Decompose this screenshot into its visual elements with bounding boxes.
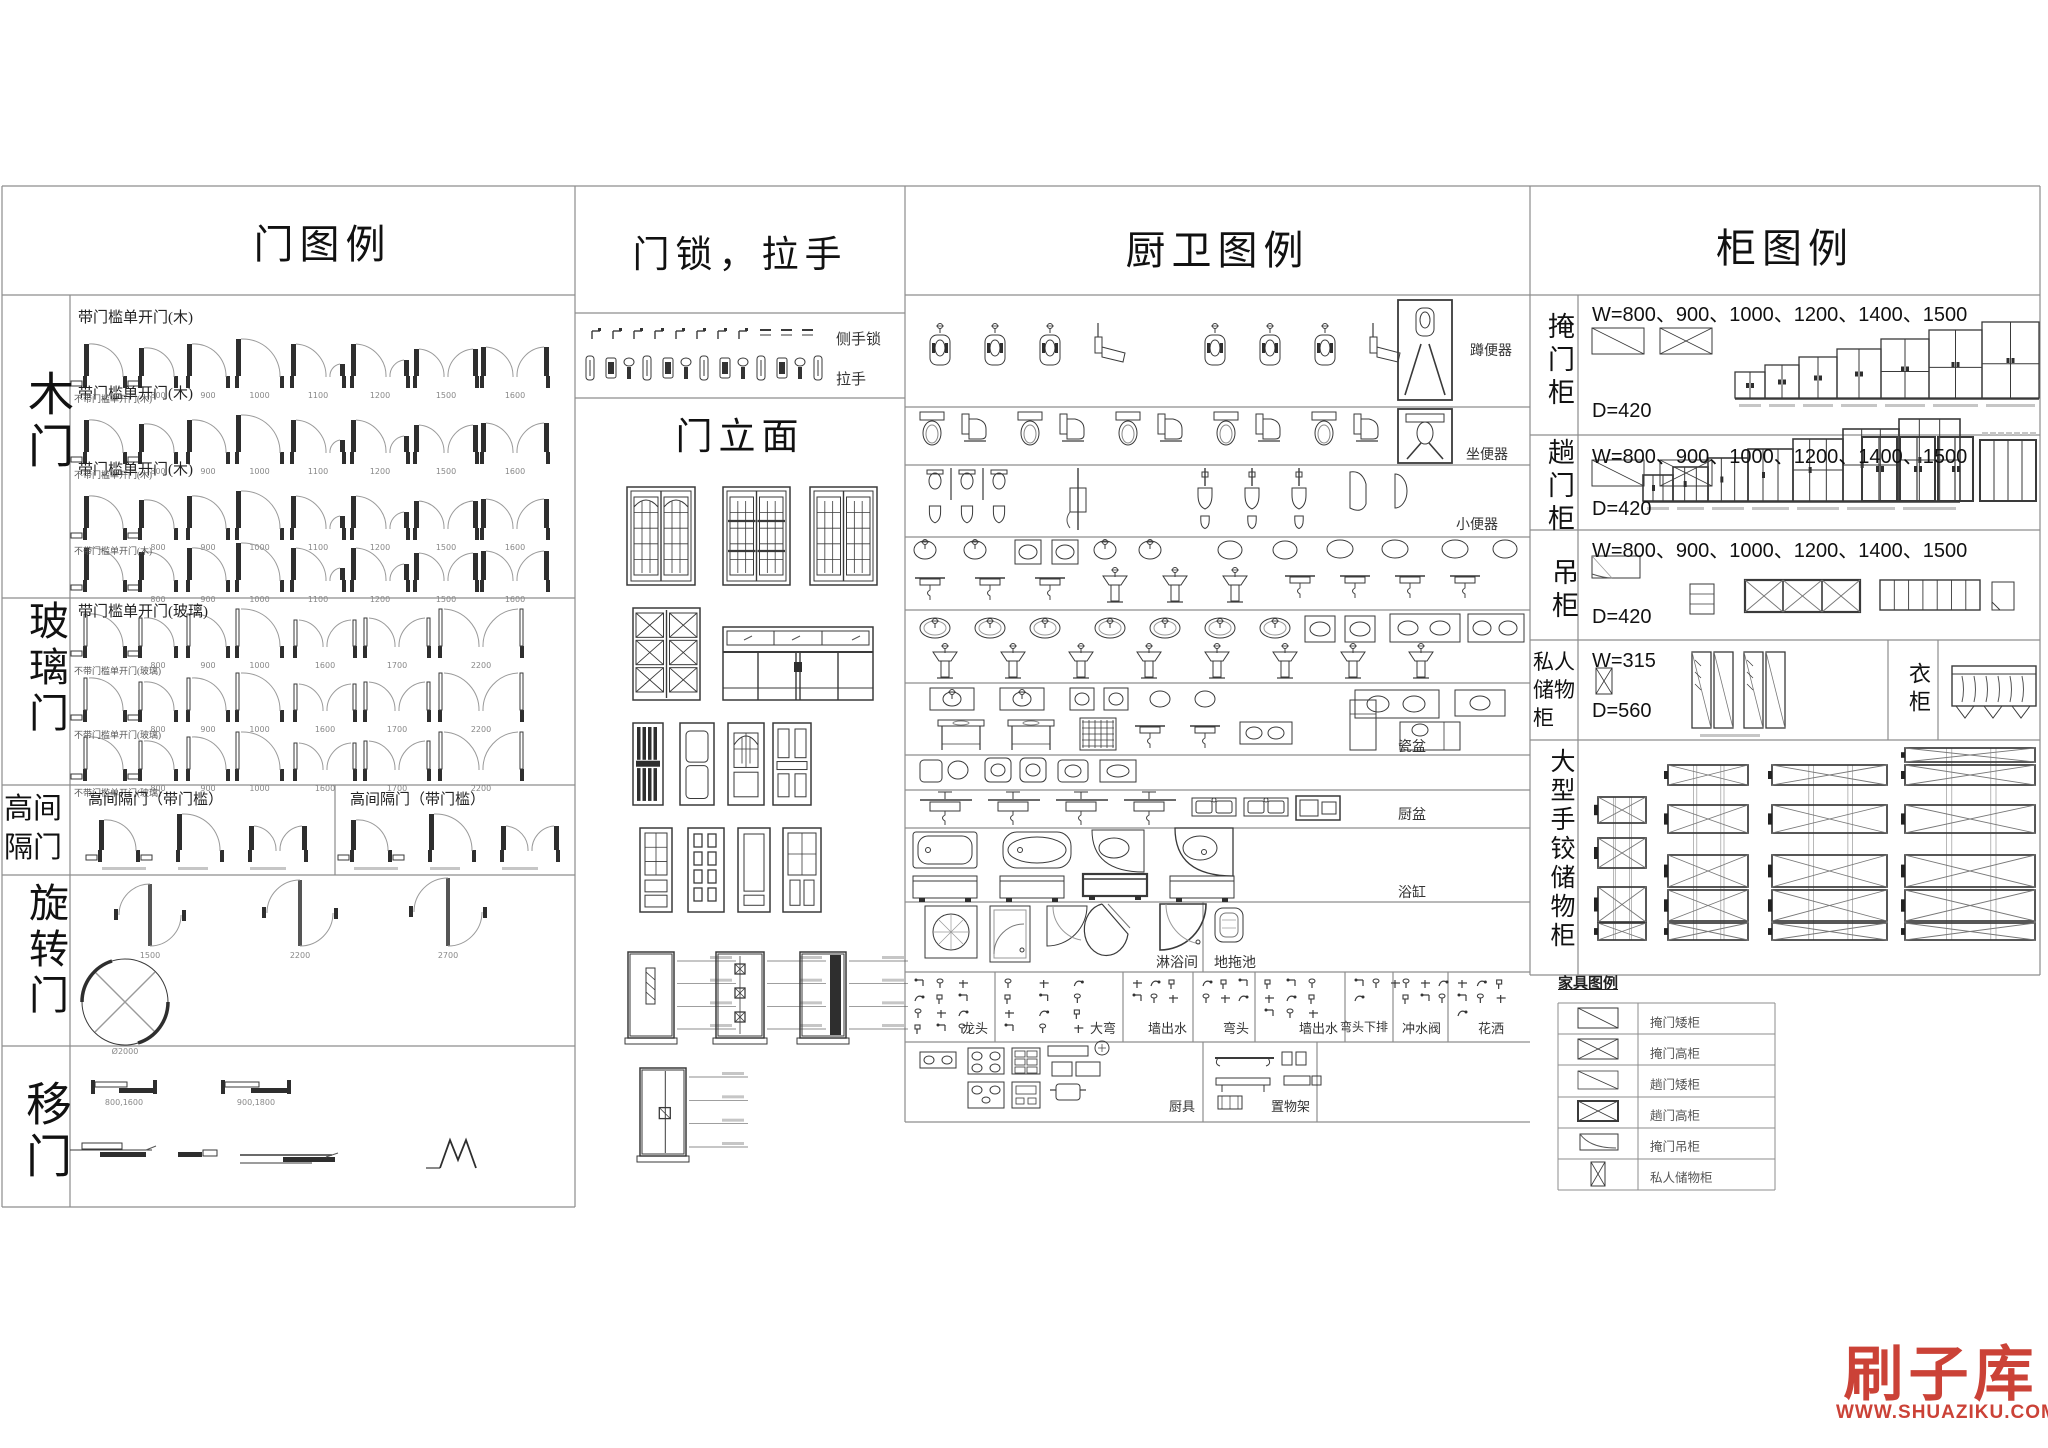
svg-text:900: 900 [200,661,215,670]
section-label-sliding-door: 移门 [12,1080,78,1184]
row-subcaption: 不带门槛单开门(木) [74,392,152,405]
row-subcaption: 不带门槛单开门(玻璃) [74,664,161,677]
kb-cell-label-kitchenware: 厨具 [1095,1096,1195,1115]
furniture-item: 掩门高柜 [1650,1043,1700,1062]
cab-label-wardrobe: 衣柜 [1902,662,1934,718]
kb-cell-label-elbow: 弯头 [1149,1018,1249,1037]
cab-label-hinged: 掩门柜 [1540,312,1579,411]
cad-legend-sheet: 8009001000110012001500160080090010001100… [0,0,2048,1448]
svg-text:1200: 1200 [370,595,390,604]
svg-text:1700: 1700 [387,661,407,670]
svg-text:1100: 1100 [308,543,328,552]
svg-text:1700: 1700 [387,725,407,734]
svg-text:1500: 1500 [436,467,456,476]
cab-w-spec: W=800、900、1000、1200、1400、1500 [1592,534,1967,563]
lock-label: 侧手锁 [836,328,881,349]
row-subcaption: 不带门槛单开门(木) [74,468,152,481]
section-label-revolving-door: 旋转门 [16,882,74,1020]
svg-text:800,1600: 800,1600 [105,1098,143,1107]
door-elevation-title: 门立面 [575,406,905,460]
svg-text:1000: 1000 [249,661,269,670]
kb-cell-label-shower-head: 花洒 [1404,1018,1504,1037]
svg-text:1200: 1200 [370,467,390,476]
svg-text:1000: 1000 [249,467,269,476]
svg-text:900: 900 [200,725,215,734]
svg-text:1100: 1100 [308,595,328,604]
cab-w-spec: W=800、900、1000、1200、1400、1500 [1592,298,1967,327]
svg-text:2200: 2200 [290,951,310,960]
kb-label-mop-pool: 地拖池 [1214,952,1256,972]
kb-label-basin: 瓷盆 [1326,736,1426,756]
row-subcaption: 不带门槛单开门(玻璃) [74,728,161,741]
svg-text:Ø2000: Ø2000 [112,1046,139,1056]
row-caption: 高间隔门（带门槛） [88,788,223,809]
kb-cell-label-faucet: 龙头 [888,1018,988,1037]
furniture-item: 掩门吊柜 [1650,1136,1700,1155]
row-caption: 带门槛单开门(玻璃) [78,600,208,621]
row-caption: 带门槛单开门(木) [78,306,193,327]
svg-text:800: 800 [150,543,165,552]
kitchen-bath-title: 厨卫图例 [905,218,1530,276]
section-label-wood-door: 木门 [14,370,80,474]
svg-text:1600: 1600 [505,467,525,476]
svg-text:2200: 2200 [471,661,491,670]
cab-label-personal-locker: 私人储物柜 [1533,648,1579,732]
svg-text:1600: 1600 [505,543,525,552]
svg-text:1500: 1500 [436,391,456,400]
svg-text:1500: 1500 [436,595,456,604]
svg-text:1600: 1600 [315,784,335,793]
svg-text:1600: 1600 [505,595,525,604]
svg-text:900: 900 [200,391,215,400]
cab-w-spec: W=315 [1592,650,1656,673]
cab-d-spec: D=420 [1592,498,1652,521]
svg-text:1000: 1000 [249,784,269,793]
svg-text:900,1800: 900,1800 [237,1098,275,1107]
svg-text:1600: 1600 [505,391,525,400]
svg-text:1000: 1000 [249,391,269,400]
svg-text:1500: 1500 [436,543,456,552]
kb-label-shower: 淋浴间 [1098,952,1198,972]
svg-text:1600: 1600 [315,725,335,734]
svg-text:900: 900 [200,467,215,476]
kb-label-bathtub: 浴缸 [1326,882,1426,902]
svg-text:1000: 1000 [249,595,269,604]
cab-d-spec: D=420 [1592,606,1652,629]
watermark-site: WWW.SHUAZIKU.COM [1836,1402,2044,1424]
svg-text:1200: 1200 [370,391,390,400]
cab-label-sliding: 趟门柜 [1540,438,1579,537]
cab-w-spec: W=800、900、1000、1200、1400、1500 [1592,440,1967,469]
kb-cell-label-rack: 置物架 [1210,1096,1310,1115]
svg-text:1100: 1100 [308,467,328,476]
furniture-item: 私人储物柜 [1650,1167,1713,1186]
handle-label: 拉手 [836,368,866,389]
kb-label-squat-toilet: 蹲便器 [1412,340,1512,360]
doors-title: 门图例 [70,212,575,270]
locks-title: 门锁，拉手 [575,224,905,278]
svg-text:1100: 1100 [308,391,328,400]
cab-d-spec: D=420 [1592,400,1652,423]
section-label-glass-door: 玻璃门 [16,600,74,738]
kb-label-kitchen-sink: 厨盆 [1326,804,1426,824]
furniture-item: 趟门高柜 [1650,1105,1700,1124]
svg-text:2700: 2700 [438,951,458,960]
svg-text:1500: 1500 [140,951,160,960]
section-label-partition-door: 高间隔门 [4,790,68,868]
kb-label-toilet: 坐便器 [1408,444,1508,464]
cabinets-title: 柜图例 [1530,216,2040,274]
row-caption: 高间隔门（带门槛） [350,788,485,809]
cab-d-spec: D=560 [1592,700,1652,723]
cab-label-wall: 吊柜 [1544,558,1583,624]
furniture-item: 趟门矮柜 [1650,1074,1700,1093]
svg-text:2200: 2200 [471,725,491,734]
furniture-legend-title: 家具图例 [1558,972,1618,993]
watermark-brand: 刷子库 [1840,1326,2042,1413]
kb-label-urinal: 小便器 [1398,514,1498,534]
cab-label-large-storage: 大型手铰储物柜 [1542,748,1578,951]
row-subcaption: 不带门槛单开门(木) [74,544,152,557]
furniture-item: 掩门矮柜 [1650,1012,1700,1031]
svg-text:1600: 1600 [315,661,335,670]
svg-text:1200: 1200 [370,543,390,552]
